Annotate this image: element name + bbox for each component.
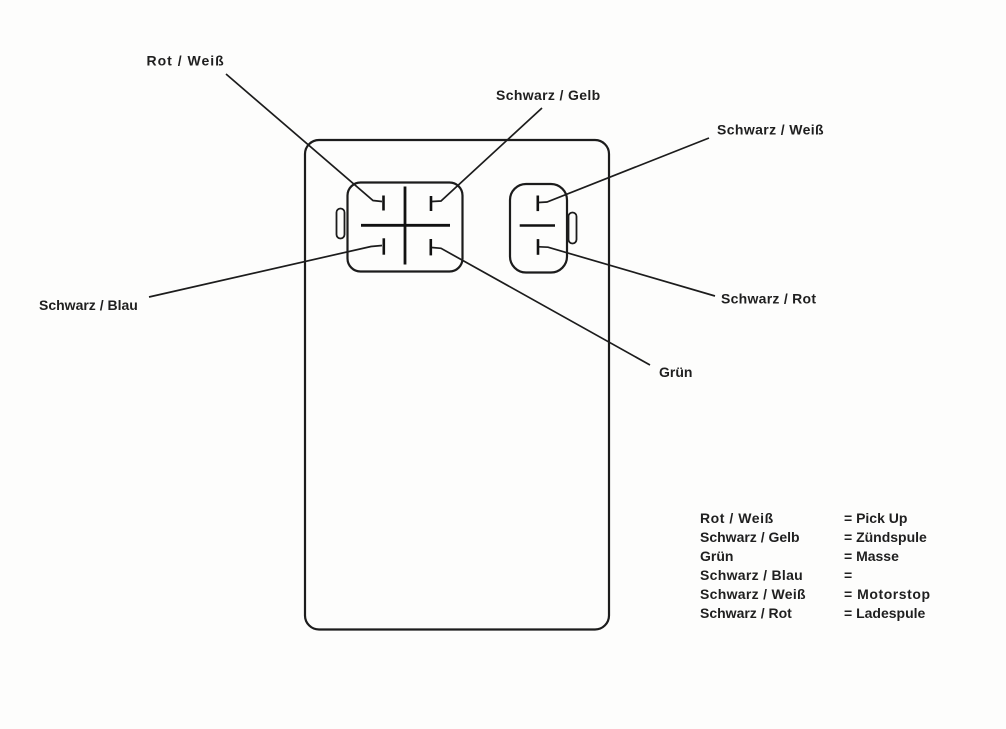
svg-text:= Motorstop: = Motorstop	[844, 586, 931, 602]
svg-text:Grün: Grün	[659, 364, 692, 380]
svg-text:Rot / Weiß: Rot / Weiß	[700, 510, 774, 526]
svg-text:=: =	[844, 567, 852, 583]
svg-text:Schwarz / Rot: Schwarz / Rot	[721, 291, 816, 307]
svg-text:Schwarz / Blau: Schwarz / Blau	[700, 567, 803, 583]
svg-text:Schwarz / Rot: Schwarz / Rot	[700, 605, 792, 621]
svg-text:= Masse: = Masse	[844, 548, 899, 564]
svg-text:Grün: Grün	[700, 548, 733, 564]
svg-text:Schwarz / Blau: Schwarz / Blau	[39, 297, 138, 313]
svg-text:Schwarz / Gelb: Schwarz / Gelb	[496, 87, 601, 103]
svg-text:Rot / Weiß: Rot / Weiß	[147, 53, 225, 69]
svg-text:= Zündspule: = Zündspule	[844, 529, 927, 545]
svg-text:Schwarz / Gelb: Schwarz / Gelb	[700, 529, 800, 545]
svg-text:= Ladespule: = Ladespule	[844, 605, 926, 621]
svg-text:Schwarz / Weiß: Schwarz / Weiß	[700, 586, 806, 602]
svg-text:Schwarz / Weiß: Schwarz / Weiß	[717, 122, 824, 138]
svg-text:= Pick Up: = Pick Up	[844, 510, 907, 526]
